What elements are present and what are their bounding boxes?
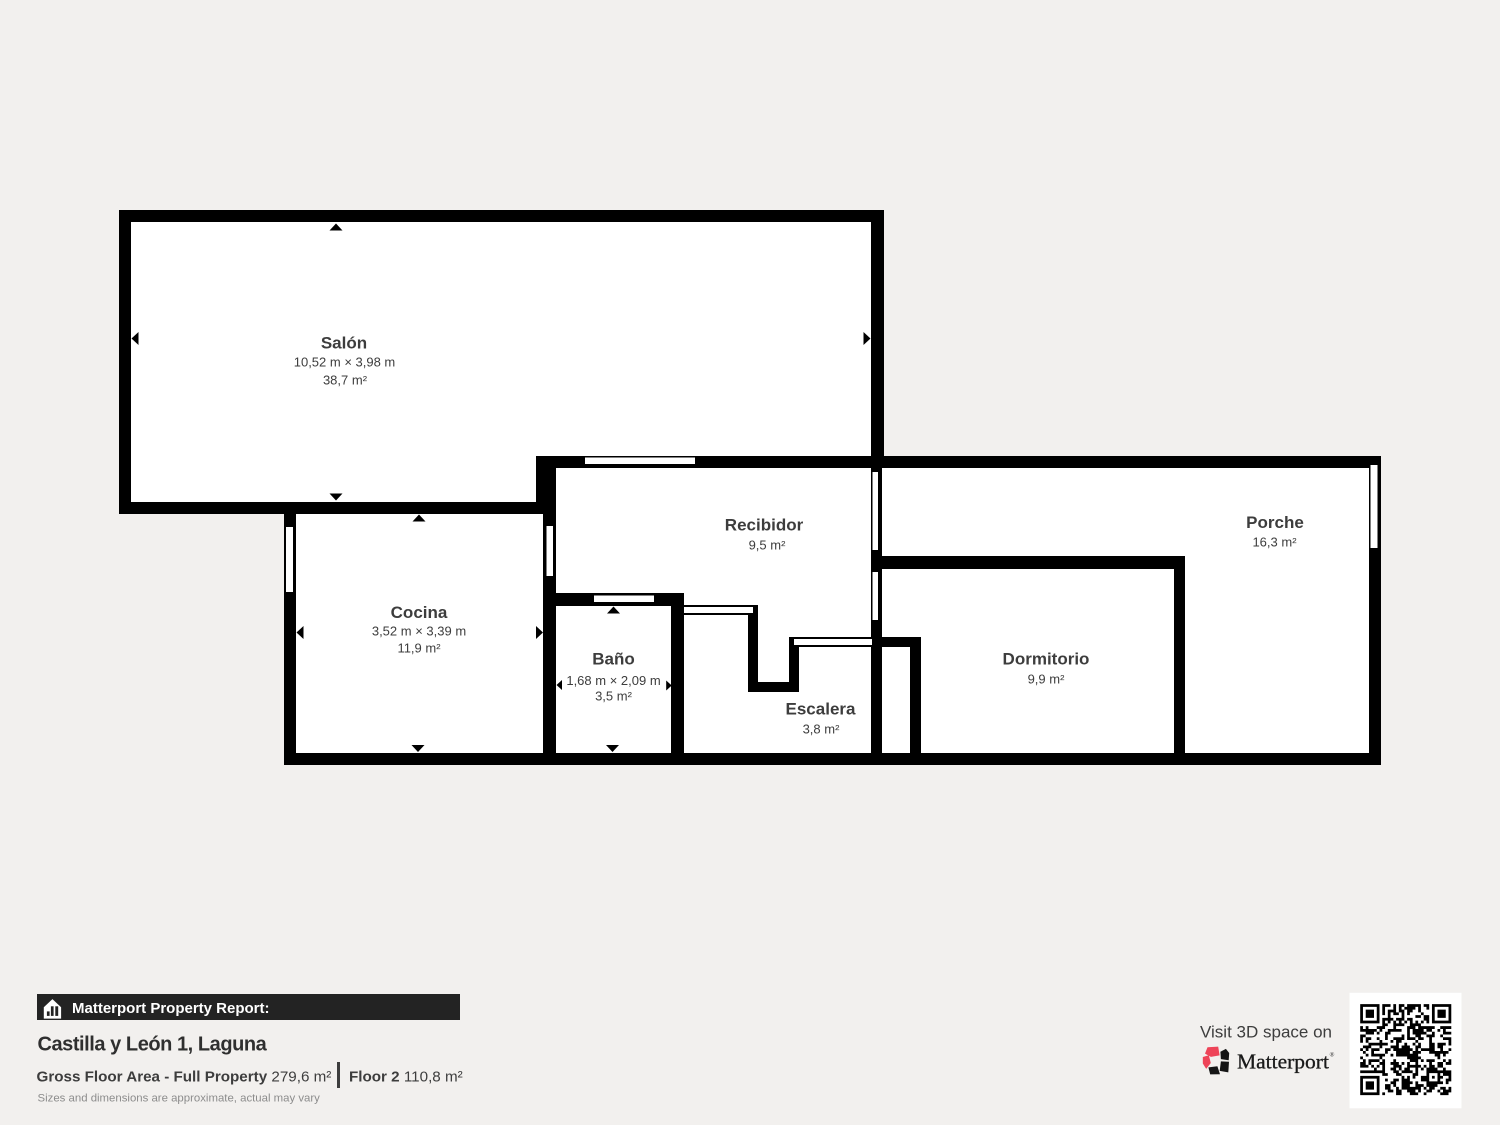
svg-text:11,9 m²: 11,9 m² <box>397 641 441 656</box>
svg-text:Cocina: Cocina <box>391 603 448 622</box>
svg-text:Floor 2 110,8 m²: Floor 2 110,8 m² <box>349 1069 463 1086</box>
svg-text:Castilla y León 1, Laguna: Castilla y León 1, Laguna <box>38 1034 268 1056</box>
svg-text:3,8 m²: 3,8 m² <box>803 722 841 737</box>
svg-text:Baño: Baño <box>592 650 635 669</box>
svg-text:9,5 m²: 9,5 m² <box>749 538 787 553</box>
svg-text:Escalera: Escalera <box>786 700 856 719</box>
svg-text:16,3 m²: 16,3 m² <box>1252 535 1297 550</box>
svg-text:Porche: Porche <box>1246 513 1304 532</box>
svg-text:Recibidor: Recibidor <box>725 516 804 535</box>
svg-text:Matterport: Matterport <box>1237 1050 1329 1074</box>
svg-text:10,52 m × 3,98 m: 10,52 m × 3,98 m <box>294 355 396 370</box>
svg-text:38,7 m²: 38,7 m² <box>323 373 368 388</box>
svg-text:Dormitorio: Dormitorio <box>1003 650 1090 669</box>
svg-text:3,52 m × 3,39 m: 3,52 m × 3,39 m <box>372 624 466 639</box>
svg-text:Visit 3D space on: Visit 3D space on <box>1200 1023 1332 1042</box>
svg-text:Matterport Property Report:: Matterport Property Report: <box>72 1000 270 1017</box>
svg-text:3,5 m²: 3,5 m² <box>595 689 633 704</box>
svg-text:9,9 m²: 9,9 m² <box>1028 672 1066 687</box>
svg-text:1,68 m × 2,09 m: 1,68 m × 2,09 m <box>566 673 660 688</box>
svg-text:®: ® <box>1330 1052 1335 1059</box>
svg-text:Gross Floor Area - Full Proper: Gross Floor Area - Full Property 279,6 m… <box>37 1069 332 1086</box>
svg-text:Sizes and dimensions are appro: Sizes and dimensions are approximate, ac… <box>38 1093 321 1105</box>
svg-text:Salón: Salón <box>321 334 367 353</box>
